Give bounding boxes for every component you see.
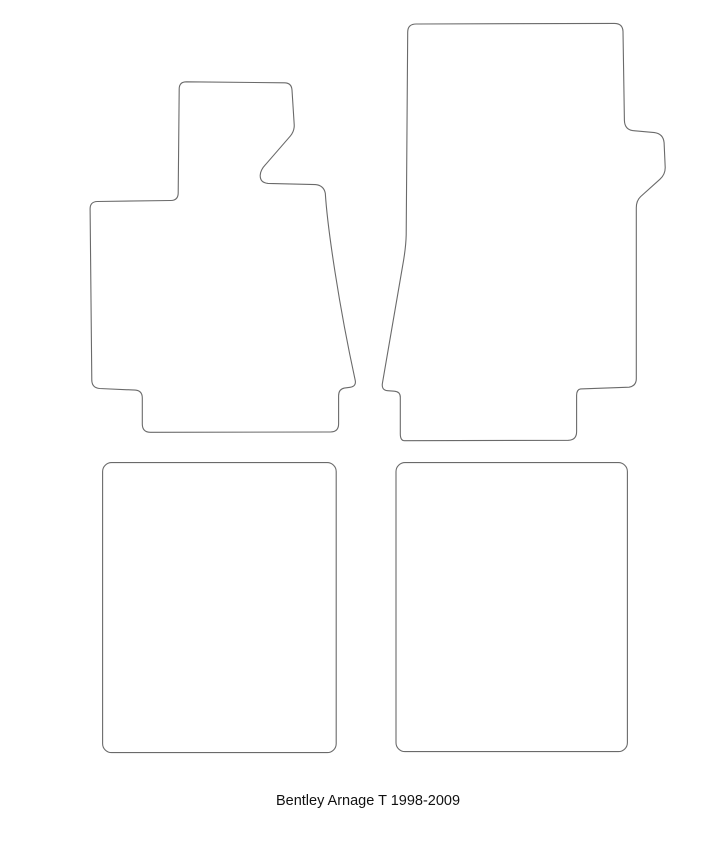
rear-right-mat-outline (396, 463, 627, 752)
front-left-mat-outline (90, 82, 355, 433)
rear-left-mat-outline (103, 463, 337, 753)
front-right-mat-outline (382, 23, 665, 440)
mat-set-diagram: Bentley Arnage T 1998-2009 (0, 0, 723, 853)
mat-diagram-canvas: Bentley Arnage T 1998-2009 (0, 0, 723, 853)
caption: Bentley Arnage T 1998-2009 (276, 793, 460, 809)
